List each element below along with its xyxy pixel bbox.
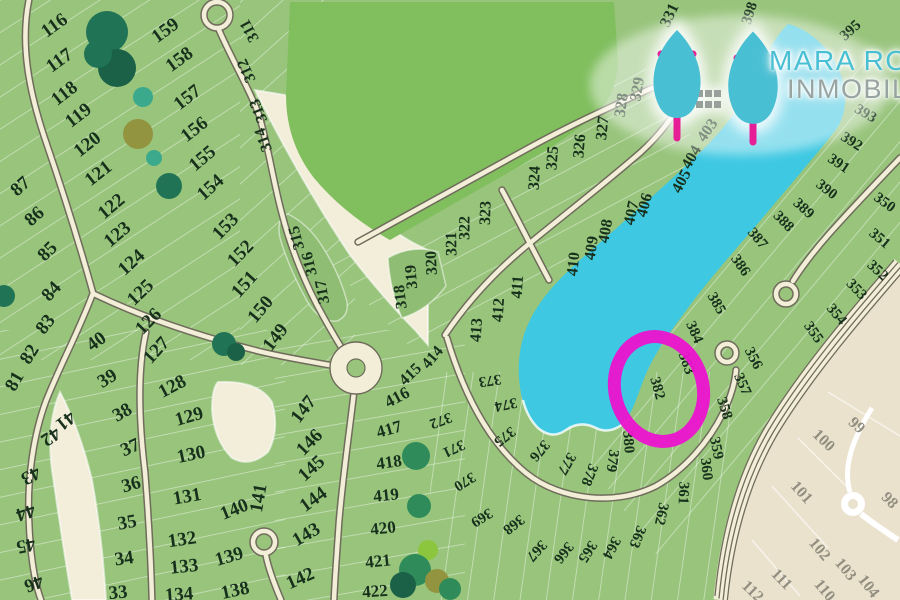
parcel-label: 379: [603, 449, 622, 474]
parcel-label: 360: [697, 457, 715, 481]
parcel-label: 420: [369, 517, 396, 539]
parcel-label: 319: [402, 264, 421, 289]
parcel-label: 409: [582, 235, 602, 261]
parcel-label: 413: [467, 317, 486, 342]
parcel-label: 422: [362, 581, 389, 600]
parcel-label: 361: [675, 481, 692, 504]
roundabout: [330, 342, 382, 394]
parcel-label: 33: [108, 581, 129, 600]
parcel-label: 133: [169, 555, 200, 579]
parcel-label: 35: [116, 511, 138, 535]
parcel-label: 323: [477, 201, 495, 226]
logo-text-line1: MARA RO: [769, 45, 900, 77]
parcel-label: 326: [570, 133, 589, 158]
parcel-label: 324: [526, 166, 544, 191]
logo-text-line2: INMOBIL: [787, 74, 900, 105]
parcel-label: 34: [113, 547, 135, 571]
map-stage: 8786858483828111611711811912012112212312…: [0, 0, 900, 600]
parcel-label: 320: [423, 251, 441, 276]
parcel-label: 373: [478, 371, 503, 390]
lot-map: 8786858483828111611711811912012112212312…: [0, 0, 900, 600]
parcel-label: 325: [543, 145, 562, 170]
parcel-label: 418: [375, 451, 403, 473]
parcel-label: 322: [456, 216, 473, 240]
parcel-label: 411: [508, 275, 527, 299]
parcel-label: 410: [564, 251, 583, 277]
parcel-label: 421: [364, 550, 391, 572]
beige-culdesac-island: [848, 499, 858, 509]
parcel-label: 419: [372, 484, 399, 506]
parcel-label: 134: [164, 583, 194, 600]
parcel-label: 412: [489, 297, 508, 322]
parcel-label: 132: [167, 527, 198, 552]
